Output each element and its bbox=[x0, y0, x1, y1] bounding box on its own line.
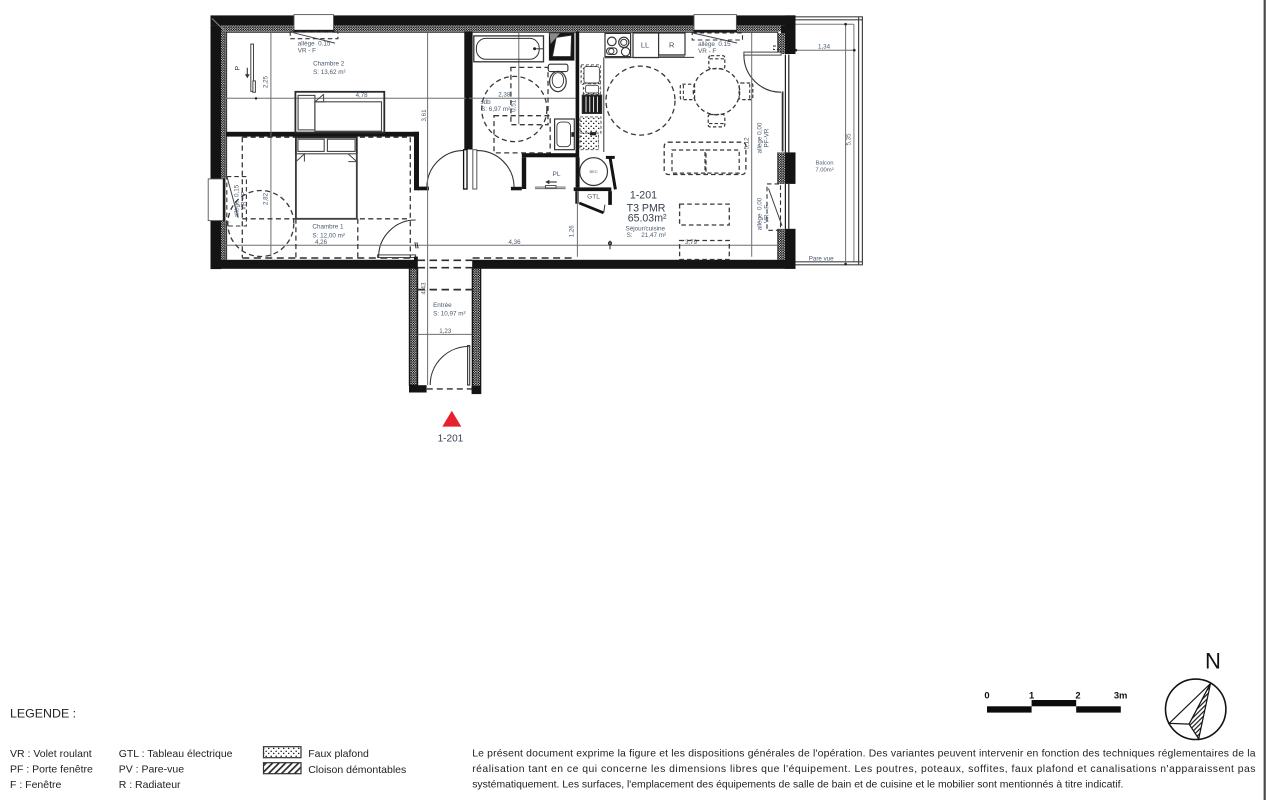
svg-text:1: 1 bbox=[1029, 690, 1034, 701]
svg-text:GTL : Tableau électrique: GTL : Tableau électrique bbox=[119, 748, 233, 760]
svg-text:systématiquement. Les surfaces: systématiquement. Les surfaces, l'emplac… bbox=[472, 779, 1123, 790]
svg-text:3,61: 3,61 bbox=[421, 109, 428, 122]
svg-text:S: 13,62 m²: S: 13,62 m² bbox=[313, 69, 346, 76]
svg-text:1-201: 1-201 bbox=[630, 189, 657, 201]
svg-text:5,35: 5,35 bbox=[846, 133, 853, 146]
svg-text:4,36: 4,36 bbox=[508, 239, 521, 246]
svg-text:Chambre 2: Chambre 2 bbox=[313, 61, 345, 68]
svg-text:4,78: 4,78 bbox=[356, 92, 369, 99]
svg-text:VR : Volet roulant: VR : Volet roulant bbox=[10, 748, 92, 760]
svg-text:N: N bbox=[1205, 649, 1221, 674]
svg-text:1,34: 1,34 bbox=[818, 44, 831, 51]
svg-text:1-201: 1-201 bbox=[438, 434, 464, 445]
svg-text:R: R bbox=[669, 40, 674, 49]
svg-text:allège 0.15: allège 0.15 bbox=[698, 41, 731, 48]
svg-text:2,82: 2,82 bbox=[263, 192, 270, 205]
svg-text:65.03m²: 65.03m² bbox=[628, 213, 667, 225]
svg-text:BEC: BEC bbox=[589, 169, 597, 174]
svg-text:2,38: 2,38 bbox=[498, 92, 511, 99]
svg-text:PF-VR: PF-VR bbox=[764, 128, 771, 147]
svg-text:S: 12,00 m²: S: 12,00 m² bbox=[312, 233, 345, 240]
svg-text:0: 0 bbox=[984, 690, 989, 701]
svg-text:4,43: 4,43 bbox=[420, 282, 427, 295]
svg-text:3m: 3m bbox=[1114, 690, 1128, 701]
svg-text:2,25: 2,25 bbox=[263, 75, 270, 88]
svg-text:S: 6,97 m²: S: 6,97 m² bbox=[481, 106, 510, 113]
svg-text:1,23: 1,23 bbox=[439, 328, 452, 335]
svg-text:allège 0,00: allège 0,00 bbox=[757, 122, 764, 153]
svg-text:PF : Porte fenêtre: PF : Porte fenêtre bbox=[10, 764, 93, 776]
svg-text:2: 2 bbox=[1075, 690, 1080, 701]
svg-text:réalisation tant en ce qui con: réalisation tant en ce qui concerne les … bbox=[472, 764, 1255, 775]
svg-text:S: 21,47 m²: S: 21,47 m² bbox=[627, 232, 667, 239]
svg-text:LL: LL bbox=[641, 40, 649, 49]
svg-text:VR - F: VR - F bbox=[764, 205, 771, 223]
svg-text:Faux plafond: Faux plafond bbox=[308, 748, 369, 760]
svg-text:LEGENDE :: LEGENDE : bbox=[10, 707, 76, 721]
svg-text:7.00m²: 7.00m² bbox=[815, 168, 833, 174]
svg-text:GTL: GTL bbox=[587, 194, 600, 201]
svg-text:4,26: 4,26 bbox=[315, 239, 328, 246]
svg-text:Chambre 1: Chambre 1 bbox=[312, 224, 344, 231]
svg-text:Pare vue: Pare vue bbox=[809, 255, 834, 262]
svg-text:allège 0,00: allège 0,00 bbox=[757, 197, 764, 230]
svg-text:1,26: 1,26 bbox=[569, 225, 576, 238]
svg-text:PL: PL bbox=[553, 171, 561, 178]
svg-text:P: P bbox=[235, 66, 242, 70]
svg-text:sdb: sdb bbox=[481, 99, 492, 106]
svg-text:Le présent document exprime la: Le présent document exprime la figure et… bbox=[472, 749, 1256, 760]
svg-text:PV : Pare-vue: PV : Pare-vue bbox=[119, 764, 185, 776]
svg-text:Entrée: Entrée bbox=[433, 302, 452, 309]
svg-text:Cloison démontables: Cloison démontables bbox=[308, 764, 406, 776]
svg-text:Balcon: Balcon bbox=[815, 160, 833, 166]
svg-text:VR - F: VR - F bbox=[298, 48, 316, 55]
svg-text:S: 10,97 m²: S: 10,97 m² bbox=[433, 310, 466, 317]
svg-text:VR - F: VR - F bbox=[698, 48, 716, 55]
svg-text:R : Radiateur: R : Radiateur bbox=[119, 779, 181, 791]
svg-text:F : Fenêtre: F : Fenêtre bbox=[10, 779, 62, 791]
